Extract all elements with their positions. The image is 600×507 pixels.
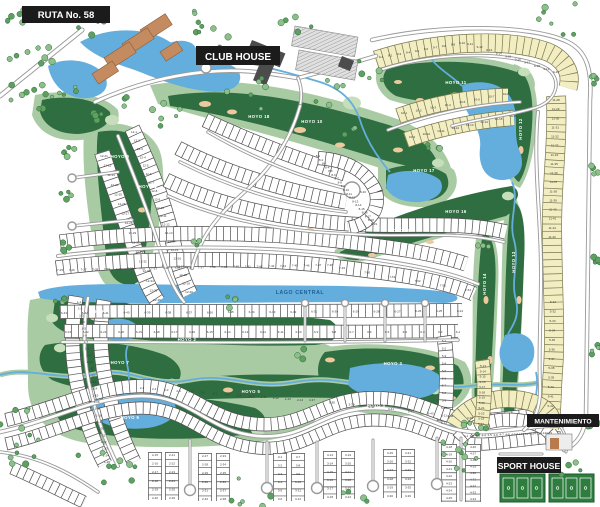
lot-number: 6-6 [367, 330, 372, 334]
lot-number: 5-15 [480, 375, 486, 379]
hole-label: HOYO 18 [248, 114, 270, 119]
club-house-label-plate: CLUB HOUSE [196, 46, 280, 65]
lot-number: 10-6 [474, 97, 480, 101]
sand-bunker [335, 143, 345, 148]
tree [195, 243, 199, 247]
tree [596, 346, 600, 350]
lot-number: 2-14 [297, 398, 303, 402]
lot-number: 10-12 [451, 126, 459, 130]
lot-number: 4-5 [488, 433, 493, 437]
lot-number: 5-19 [479, 396, 485, 400]
lot-number: 6-35 [228, 310, 234, 314]
lot-number: 3-39 [348, 403, 354, 407]
lot-number: 2-13 [285, 397, 291, 401]
tree [380, 78, 384, 82]
tree [461, 422, 467, 428]
lot-number: 7-41 [245, 265, 251, 269]
lot-number: 6-43 [61, 311, 67, 315]
lot-number: 12-24 [111, 183, 119, 187]
tree [36, 46, 41, 51]
lot-number: 3-29 [387, 485, 393, 489]
lot-number: 12-8 [151, 189, 157, 193]
tree [174, 114, 178, 118]
lot-number: 6-26 [415, 309, 421, 313]
lot-number: 12-10 [156, 206, 164, 210]
lot-number: 11-36 [550, 171, 558, 175]
tree [196, 20, 201, 25]
lot-number: 12-13 [165, 231, 173, 235]
tree [59, 191, 63, 195]
lot-number: 5-17 [479, 385, 485, 389]
lot-number: 5-1 [442, 339, 447, 343]
lot-number: 5-42 [547, 404, 553, 408]
lot-number: 9-8 [442, 44, 447, 48]
lot-number: 6-11 [278, 330, 284, 334]
lot-number: 1-22 [100, 440, 106, 444]
lot-number: 5-7 [442, 384, 447, 388]
tree [32, 455, 36, 459]
lot-number: 6-34 [249, 310, 255, 314]
tree [262, 84, 268, 90]
tree [32, 87, 37, 92]
tree [8, 455, 13, 460]
lot-number: 1-18 [96, 413, 102, 417]
lot-number: 1-11 [88, 367, 94, 371]
cul-de-sac [382, 300, 389, 307]
tree [14, 443, 18, 447]
lot-number: 11-32 [551, 135, 559, 139]
tree [462, 454, 468, 460]
lot-number: 4-21 [446, 467, 452, 471]
tree [260, 76, 264, 80]
tree [53, 299, 57, 303]
lot-number: 8-20 [360, 190, 366, 194]
lot-number: 2-3 [164, 388, 169, 392]
lot-strip [60, 310, 462, 312]
lot-number: 1-17 [95, 407, 101, 411]
lot-number: 3-14 [327, 461, 333, 465]
lot-number: 10-2 [416, 108, 422, 112]
cul-de-sac [68, 174, 76, 182]
tree [14, 53, 19, 58]
lot-number: 12-1 [131, 130, 137, 134]
lot-number: 6-38 [165, 311, 171, 315]
lot-number: 4-27 [470, 452, 476, 456]
lot-number: 4-8 [505, 433, 510, 437]
lot-number: 9-5 [415, 49, 420, 53]
tree [441, 440, 445, 444]
tree [481, 243, 486, 248]
lot-number: 1-19 [97, 420, 103, 424]
lot-number: 6-2 [438, 330, 443, 334]
lot-number: 12-18 [179, 273, 187, 277]
tree [28, 433, 32, 437]
lot-number: 11-38 [550, 189, 558, 193]
lot-number: 9-9 [451, 43, 456, 47]
tree [67, 145, 72, 150]
lot-number: 5-3 [442, 354, 447, 358]
tree [571, 32, 575, 36]
tree [542, 10, 546, 14]
lot-number: 2-30 [202, 480, 208, 484]
lot-number: 6-31 [311, 310, 317, 314]
hole-label: HOYO 17 [413, 168, 435, 173]
lot-number: 10-13 [466, 123, 474, 127]
lot-number: 9-18 [534, 64, 540, 68]
lot-number: 3-35 [405, 485, 411, 489]
lot-number: 9-11 [467, 42, 473, 46]
central-lake-label: LAGO CENTRAL [276, 290, 325, 296]
lot-number: 4-22 [446, 474, 452, 478]
sand-bunker [426, 240, 434, 244]
lot-number: 7-51 [389, 275, 395, 279]
lot-number: 3-31 [405, 451, 411, 455]
putting-green [518, 68, 530, 77]
lot-number: 3-3 [278, 472, 283, 476]
putting-green [502, 192, 514, 201]
tree [117, 458, 123, 464]
lot-number: 12-11 [159, 214, 167, 218]
lot-number: 7-35 [174, 266, 180, 270]
tree [43, 91, 49, 97]
route-label-plate: RUTA No. 58 [22, 6, 110, 23]
lot-number: 6-5 [385, 330, 390, 334]
tree [475, 243, 480, 248]
cul-de-sac [342, 300, 349, 307]
lot-number: 2-22 [169, 462, 175, 466]
sand-bunker [393, 148, 403, 153]
lot-number: 2-27 [202, 454, 208, 458]
tree [342, 132, 347, 137]
lot-number: 3-34 [405, 477, 411, 481]
lot-number: 7-30 [116, 267, 122, 271]
sport-house-label: SPORT HOUSE [498, 461, 561, 471]
lot-number: 7-34 [163, 266, 169, 270]
lot-number: 3-42 [408, 409, 414, 413]
sand-bunker [394, 80, 402, 84]
tree [224, 89, 230, 95]
lot-number: 9-14 [496, 51, 502, 55]
lot-number: 2-19 [152, 487, 158, 491]
generated-map-layers: HOYO 1HOYO 2HOYO 3HOYO 4HOYO 5HOYO 6HOYO… [0, 2, 600, 507]
lot-number: 1-13 [90, 380, 96, 384]
lot-number: 9-10 [459, 41, 465, 45]
lot-number: 2-36 [220, 480, 226, 484]
tree [376, 68, 382, 74]
lot-number: 7-49 [339, 266, 345, 270]
lot-number: 7-46 [303, 263, 309, 267]
lot-number: 3-7 [296, 455, 301, 459]
tree [25, 49, 30, 54]
lot-number: 6-18 [154, 330, 160, 334]
lot-number: 7-29 [104, 267, 110, 271]
tree [249, 93, 253, 97]
cul-de-sac [262, 483, 273, 494]
tree [38, 60, 44, 66]
tree [463, 442, 467, 446]
sand-bunker [325, 358, 335, 363]
maintenance-label-plate: MANTENIMIENTO [527, 414, 599, 427]
lot-number: 12-2 [134, 138, 140, 142]
lot-number: 3-5 [278, 489, 283, 493]
lot-number: 12-23 [107, 173, 115, 177]
lot-number: 7-28 [92, 267, 98, 271]
tree [24, 408, 29, 413]
lot-number: 3-40 [368, 405, 374, 409]
lot-number: 4-23 [446, 481, 452, 485]
lot-number: 2-6 [201, 391, 206, 395]
hole-label: HOYO 6 [121, 415, 140, 420]
lot-number: 12-14 [168, 240, 176, 244]
tree [588, 163, 594, 169]
lot-number: 12-25 [114, 192, 122, 196]
hole-label: HOYO 11 [445, 80, 466, 85]
sport-house-label-plate: SPORT HOUSE [497, 457, 561, 473]
tree [334, 84, 340, 90]
lot-number: 2-7 [213, 392, 218, 396]
lot-number: 3-24 [345, 495, 351, 499]
lot-number: 9-13 [486, 48, 492, 52]
lot-number: 6-17 [171, 330, 177, 334]
tree [462, 469, 466, 473]
lot-number: 2-37 [220, 488, 226, 492]
lot-number: 12-6 [145, 172, 151, 176]
tree [13, 407, 19, 413]
tree [46, 44, 52, 50]
sand-bunker [368, 253, 376, 257]
lot-number: 2-4 [176, 389, 181, 393]
lot-number: 4-24 [446, 489, 452, 493]
putting-green [54, 344, 66, 353]
tree [536, 17, 541, 22]
lot-number: 1-15 [92, 393, 98, 397]
tree [9, 82, 15, 88]
lot-number: 7-32 [139, 267, 145, 271]
lot-number: 6-40 [123, 311, 129, 315]
lot-number: 2-29 [202, 471, 208, 475]
lot-number: 5-38 [548, 366, 554, 370]
lot-number: 5-21 [478, 406, 484, 410]
lot-number: 9-7 [433, 46, 438, 50]
tree [61, 150, 66, 155]
lot-number: 12-7 [148, 181, 154, 185]
tree [161, 100, 167, 106]
lot-number: 3-25 [387, 451, 393, 455]
lot-number: 2-35 [220, 471, 226, 475]
lot-number: 6-8 [332, 330, 337, 334]
lot-number: 5-32 [550, 310, 556, 314]
lot-number: 11-43 [548, 235, 556, 239]
lot-number: 9-17 [524, 61, 530, 65]
putting-green [432, 159, 444, 168]
lot-number: 7-37 [198, 265, 204, 269]
tree [314, 99, 318, 103]
lot-number: 2-38 [220, 497, 226, 501]
lot-number: 6-27 [394, 309, 400, 313]
lot-number: 10-3 [430, 106, 436, 110]
lot-number: 7-33 [151, 266, 157, 270]
lot-number: 6-4 [403, 330, 408, 334]
tree [73, 85, 77, 89]
lot-number: 2-32 [202, 497, 208, 501]
lot-number: 7-48 [327, 263, 333, 267]
tree [573, 460, 579, 466]
lot-number: 6-10 [295, 330, 301, 334]
lot-number: 3-36 [405, 494, 411, 498]
tree [200, 24, 204, 28]
golf-community-plan-svg: HOYO 1HOYO 2HOYO 3HOYO 4HOYO 5HOYO 6HOYO… [0, 0, 600, 507]
lot-number: 6-21 [100, 330, 106, 334]
lot-number: 1-16 [93, 400, 99, 404]
tree [124, 94, 130, 100]
lot-number: 2-8 [225, 393, 230, 397]
tree [39, 82, 45, 88]
lot-number: 11-41 [549, 217, 557, 221]
lot-number: 5-2 [442, 347, 447, 351]
tree [295, 29, 301, 35]
lot-number: 2-11 [261, 395, 267, 399]
lot-number: 2-2 [152, 387, 157, 391]
lot-number: 6-23 [65, 330, 71, 334]
tree [341, 83, 346, 88]
lot-number: 3-17 [327, 487, 333, 491]
lot-number: 1-25 [104, 460, 110, 464]
lot-number: 3-16 [327, 478, 333, 482]
lot-number: 3-9 [296, 472, 301, 476]
lot-number: 1-9 [86, 353, 91, 357]
sand-bunker [199, 101, 211, 107]
lot-number: 2-18 [152, 479, 158, 483]
lot-number: 1-20 [98, 427, 104, 431]
cul-de-sac [432, 479, 443, 490]
lot-number: 2-34 [220, 463, 226, 467]
lot-number: 2-28 [202, 463, 208, 467]
lot-number: 7-45 [292, 264, 298, 268]
putting-green [105, 115, 119, 125]
hole-label: HOYO 5 [242, 389, 261, 394]
lot-number: 6-15 [207, 330, 213, 334]
lot-number: 6-12 [260, 330, 266, 334]
lot-number: 10-11 [437, 129, 445, 133]
lot-number: 6-9 [314, 330, 319, 334]
lot-number: 3-18 [327, 495, 333, 499]
lot-number: 11-29 [552, 107, 560, 111]
lot-number: 12-15 [171, 248, 179, 252]
lot-number: 2-33 [220, 454, 226, 458]
lot-number: 3-23 [345, 487, 351, 491]
lot-number: 6-28 [374, 309, 380, 313]
lot-number: 6-29 [353, 310, 359, 314]
lot-number: 12-22 [104, 164, 112, 168]
lot-number: 11-42 [549, 226, 557, 230]
hole-label: HOYO 10 [301, 119, 323, 124]
tree [15, 451, 19, 455]
lot-number: 4-30 [470, 471, 476, 475]
lot-number: 1-14 [91, 387, 97, 391]
lot-number: 12-28 [125, 221, 133, 225]
lot-number: 2-31 [202, 488, 208, 492]
lot-number: 10-8 [503, 92, 509, 96]
lot-number: 5-23 [478, 417, 484, 421]
lot-number: 4-28 [470, 458, 476, 462]
tree [42, 55, 48, 61]
tree [358, 59, 362, 63]
lot-number: 10-10 [423, 132, 431, 136]
lot-number: 5-4 [442, 361, 447, 365]
tree [353, 126, 357, 130]
lot-number: 5-18 [479, 390, 485, 394]
lot-number: 9-16 [515, 58, 521, 62]
lot-number: 3-32 [405, 460, 411, 464]
lot-number: 6-32 [290, 310, 296, 314]
lake [500, 333, 535, 372]
lot-number: 3-26 [387, 460, 393, 464]
lot-number: 1-4 [80, 320, 85, 324]
lot-number: 4-32 [470, 484, 476, 488]
tree [9, 98, 13, 102]
tree [468, 421, 472, 425]
tree [122, 104, 127, 109]
lot-number: 7-27 [80, 268, 86, 272]
tree [592, 172, 597, 177]
tree [72, 146, 77, 151]
lot-number: 6-14 [224, 330, 230, 334]
lot-number: 5-12 [441, 421, 447, 425]
lot-number: 10-1 [401, 111, 407, 115]
lot-number: 3-8 [296, 463, 301, 467]
lot-number: 6-36 [207, 310, 213, 314]
tree [260, 503, 266, 507]
lot-number: 3-11 [295, 489, 301, 493]
lot-number: 5-35 [549, 338, 555, 342]
lot-number: 9-19 [543, 67, 549, 71]
tree [550, 22, 554, 26]
lot-number: 6-20 [118, 330, 124, 334]
tree [486, 244, 490, 248]
lot-number: 4-1 [464, 434, 469, 438]
tree [101, 480, 106, 485]
tree [365, 499, 370, 504]
lot-number: 3-21 [345, 470, 351, 474]
hole-label: HOYO 15 [389, 228, 411, 233]
lot-number: 2-10 [248, 394, 254, 398]
lot-number: 6-33 [269, 310, 275, 314]
lot-number: 12-36 [153, 298, 161, 302]
lot-number: 3-20 [345, 461, 351, 465]
lot-number: 5-14 [480, 369, 486, 373]
tree [542, 4, 549, 11]
lot-number: 7-43 [268, 264, 274, 268]
lot-number: 4-7 [499, 433, 504, 437]
lot-number: 9-2 [388, 53, 393, 57]
lot-number: 5-41 [548, 395, 554, 399]
lot-number: 6-25 [436, 309, 442, 313]
tree [127, 461, 133, 467]
lot-number: 4-26 [470, 445, 476, 449]
lot-strip [12, 468, 84, 502]
tree [233, 297, 238, 302]
lot-number: 5-37 [549, 357, 555, 361]
route-label: RUTA No. 58 [38, 10, 94, 21]
lot-number: 4-15 [546, 431, 552, 435]
tree [159, 116, 164, 121]
lot-number: 12-20 [185, 290, 193, 294]
tree [566, 462, 572, 468]
lot-number: 12-26 [118, 202, 126, 206]
lot-number: 5-5 [442, 369, 447, 373]
lot-number: 1-24 [103, 453, 109, 457]
lot-number: 7-25 [57, 268, 63, 272]
